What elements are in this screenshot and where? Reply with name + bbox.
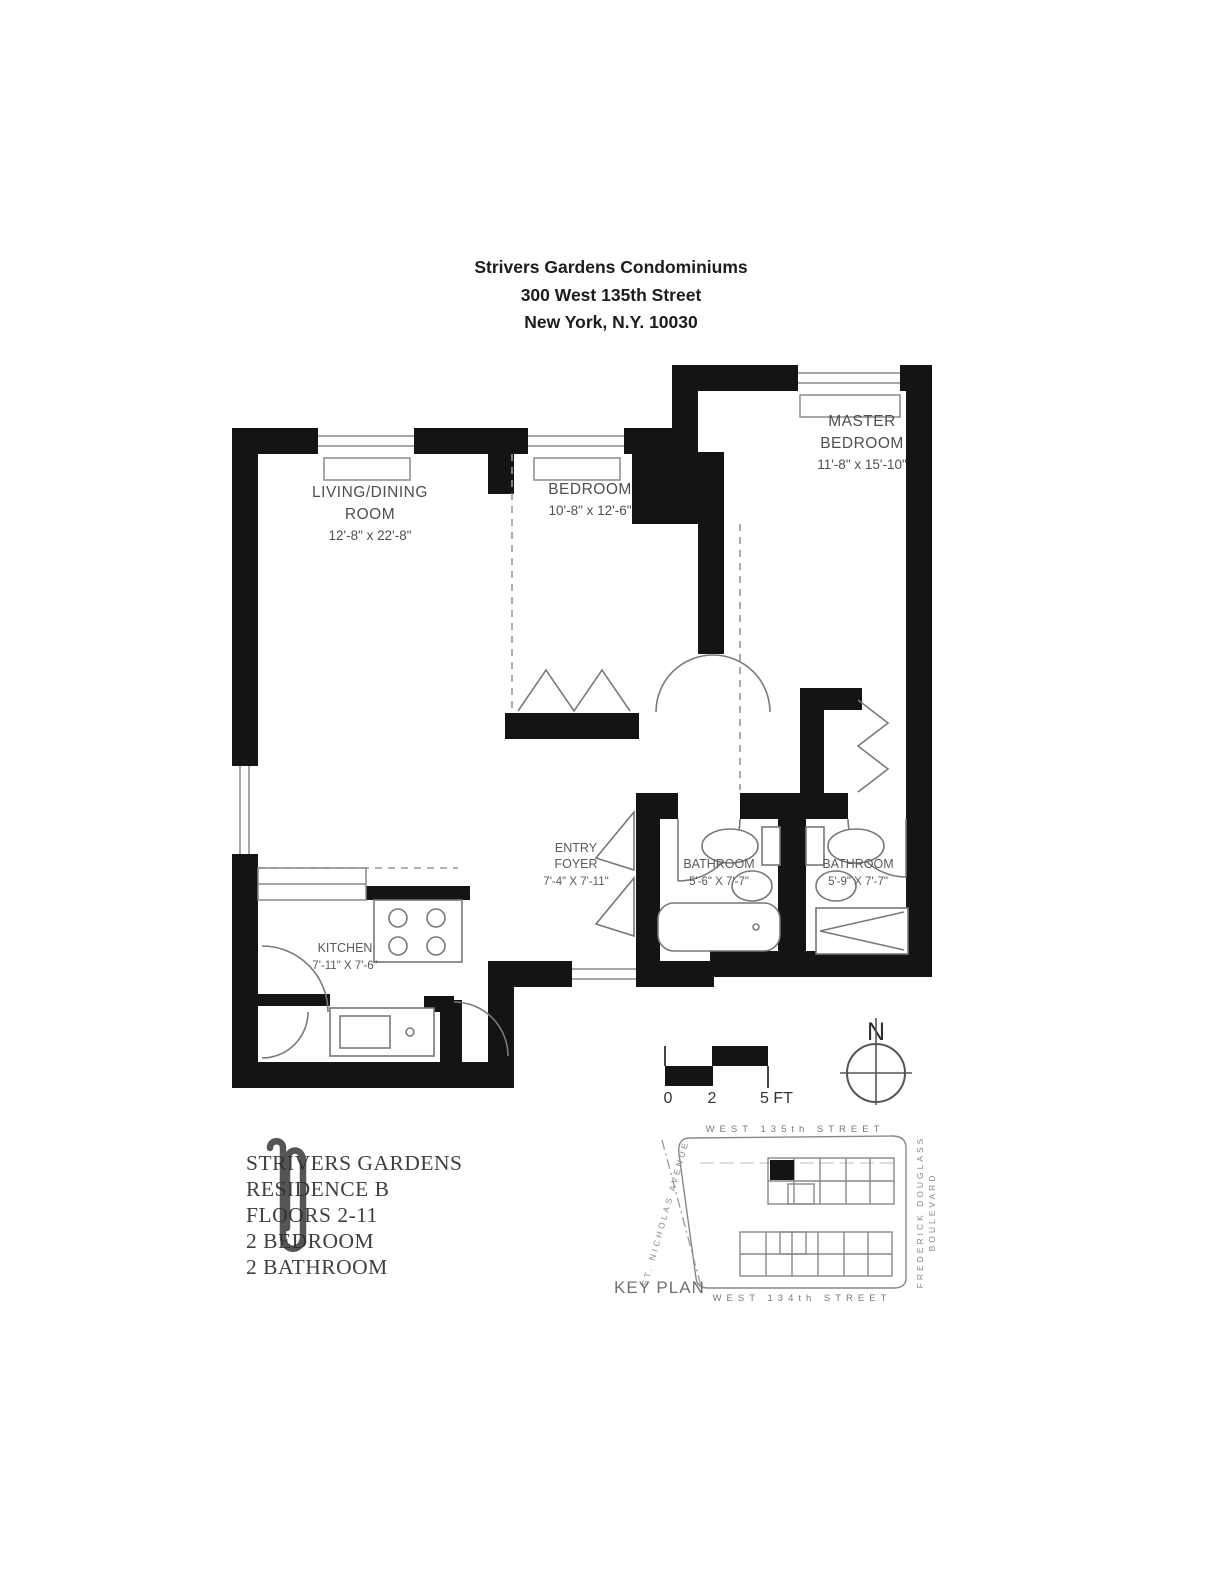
street-bottom-label: WEST 134th STREET <box>713 1293 892 1304</box>
svg-text:MASTER: MASTER <box>828 413 896 430</box>
stove <box>374 900 462 962</box>
scale-bar: 0 2 5 FT <box>664 1046 794 1107</box>
svg-text:10'-8" x 12'-6": 10'-8" x 12'-6" <box>548 503 631 518</box>
unit-info-block: STRIVERS GARDENS RESIDENCE B FLOORS 2-11… <box>246 1141 462 1279</box>
wall-master-closet-top <box>824 688 862 710</box>
kitchen-label: KITCHEN 7'-11" X 7'-6" <box>312 941 377 972</box>
toilet1-tank <box>762 827 780 865</box>
unit-entry-door-gap <box>572 961 636 987</box>
svg-text:LIVING/DINING: LIVING/DINING <box>312 484 428 501</box>
wall-column-block <box>632 428 698 524</box>
toilet2-tank <box>806 827 824 865</box>
shower-stall <box>816 908 908 954</box>
upper-building <box>768 1158 894 1204</box>
info-building: STRIVERS GARDENS <box>246 1151 462 1175</box>
wall-fridge-divider <box>258 994 330 1006</box>
building-city: New York, N.Y. 10030 <box>524 312 698 332</box>
master-bedroom-label: MASTER BEDROOM 11'-8" x 15'-10" <box>817 413 907 472</box>
svg-text:11'-8" x 15'-10": 11'-8" x 15'-10" <box>817 457 907 472</box>
subject-unit-marker <box>770 1160 794 1180</box>
wall-divider-stub <box>488 452 514 494</box>
svg-text:BATHROOM: BATHROOM <box>683 857 754 871</box>
bath2-door-gap <box>848 793 906 819</box>
svg-text:12'-8" x 22'-8": 12'-8" x 22'-8" <box>328 528 411 543</box>
bedroom-radiator <box>534 458 620 480</box>
wall-hallway <box>698 452 724 654</box>
wall-bath-bottom <box>710 951 932 977</box>
bathroom1-fixtures <box>658 827 780 951</box>
scale-2: 2 <box>708 1090 717 1107</box>
wall-kitchen-bottom <box>232 1062 514 1088</box>
svg-text:FOYER: FOYER <box>554 857 597 871</box>
bedroom-label: BEDROOM 10'-8" x 12'-6" <box>548 481 632 518</box>
left-wall-window <box>232 766 258 854</box>
svg-text:7'-11" X 7'-6": 7'-11" X 7'-6" <box>312 960 377 972</box>
svg-text:5'-6" X 7'-7": 5'-6" X 7'-7" <box>689 876 749 888</box>
bath1-door-gap <box>678 793 740 819</box>
master-window <box>798 365 900 417</box>
info-bedrooms: 2 BEDROOM <box>246 1229 374 1253</box>
key-plan-label: KEY PLAN <box>614 1278 705 1297</box>
entry-closet-door-upper <box>596 812 634 870</box>
svg-text:BEDROOM: BEDROOM <box>548 481 632 498</box>
bedroom-closet-bifold <box>518 670 630 711</box>
bathroom2-fixtures <box>806 827 908 954</box>
wall-between-baths <box>778 793 806 977</box>
master-closet-bifold <box>858 700 888 792</box>
bedroom-window <box>528 428 624 480</box>
svg-text:BATHROOM: BATHROOM <box>822 857 893 871</box>
wall-entry-bath <box>636 793 660 987</box>
building-name: Strivers Gardens Condominiums <box>474 257 748 277</box>
living-radiator <box>324 458 410 480</box>
entry-foyer-label: ENTRY FOYER 7'-4" X 7'-11" <box>543 841 608 888</box>
wall-top-main <box>232 428 698 454</box>
bathtub <box>658 903 780 951</box>
scale-5ft: 5 FT <box>760 1090 793 1107</box>
info-residence: RESIDENCE B <box>246 1177 389 1201</box>
wall-right <box>906 365 932 977</box>
north-arrow: N <box>840 1018 912 1105</box>
info-floors: FLOORS 2-11 <box>246 1203 378 1227</box>
info-bathrooms: 2 BATHROOM <box>246 1255 388 1279</box>
street-top-label: WEST 135th STREET <box>706 1124 885 1135</box>
floor-plan-page: Strivers Gardens Condominiums 300 West 1… <box>0 0 1224 1584</box>
scale-0: 0 <box>664 1090 673 1107</box>
svg-text:KITCHEN: KITCHEN <box>318 941 373 955</box>
living-window <box>318 428 414 480</box>
building-address: 300 West 135th Street <box>521 285 702 305</box>
svg-text:7'-4" X 7'-11": 7'-4" X 7'-11" <box>543 876 608 888</box>
bedroom-door-arc <box>656 655 770 712</box>
svg-text:BEDROOM: BEDROOM <box>820 435 904 452</box>
wall-bedroom-closet <box>505 713 639 739</box>
kitchen-sink <box>330 1008 434 1056</box>
svg-text:ENTRY: ENTRY <box>555 841 598 855</box>
wall-left <box>232 428 258 1088</box>
boulevard-label-line1: FREDERICK DOUGLASS <box>915 1136 925 1289</box>
lower-building-bump <box>780 1232 806 1254</box>
title-block: Strivers Gardens Condominiums 300 West 1… <box>474 257 748 332</box>
wall-stove-back <box>366 886 470 900</box>
living-room-label: LIVING/DINING ROOM 12'-8" x 22'-8" <box>312 484 428 543</box>
avenue-label: ST. NICHOLAS AVENUE <box>639 1139 690 1287</box>
upper-building-annex <box>788 1184 814 1204</box>
lower-building <box>740 1232 892 1276</box>
boulevard-label-line2: BOULEVARD <box>927 1173 937 1252</box>
svg-text:5'-9" X 7'-7": 5'-9" X 7'-7" <box>828 876 888 888</box>
wall-master-closet-left <box>800 688 824 795</box>
fridge-door-arc-lower <box>262 1012 308 1058</box>
key-plan: WEST 135th STREET WEST 134th STREET FRED… <box>614 1124 937 1304</box>
floor-plan-drawing: Strivers Gardens Condominiums 300 West 1… <box>0 0 1224 1584</box>
svg-text:ROOM: ROOM <box>345 506 395 523</box>
